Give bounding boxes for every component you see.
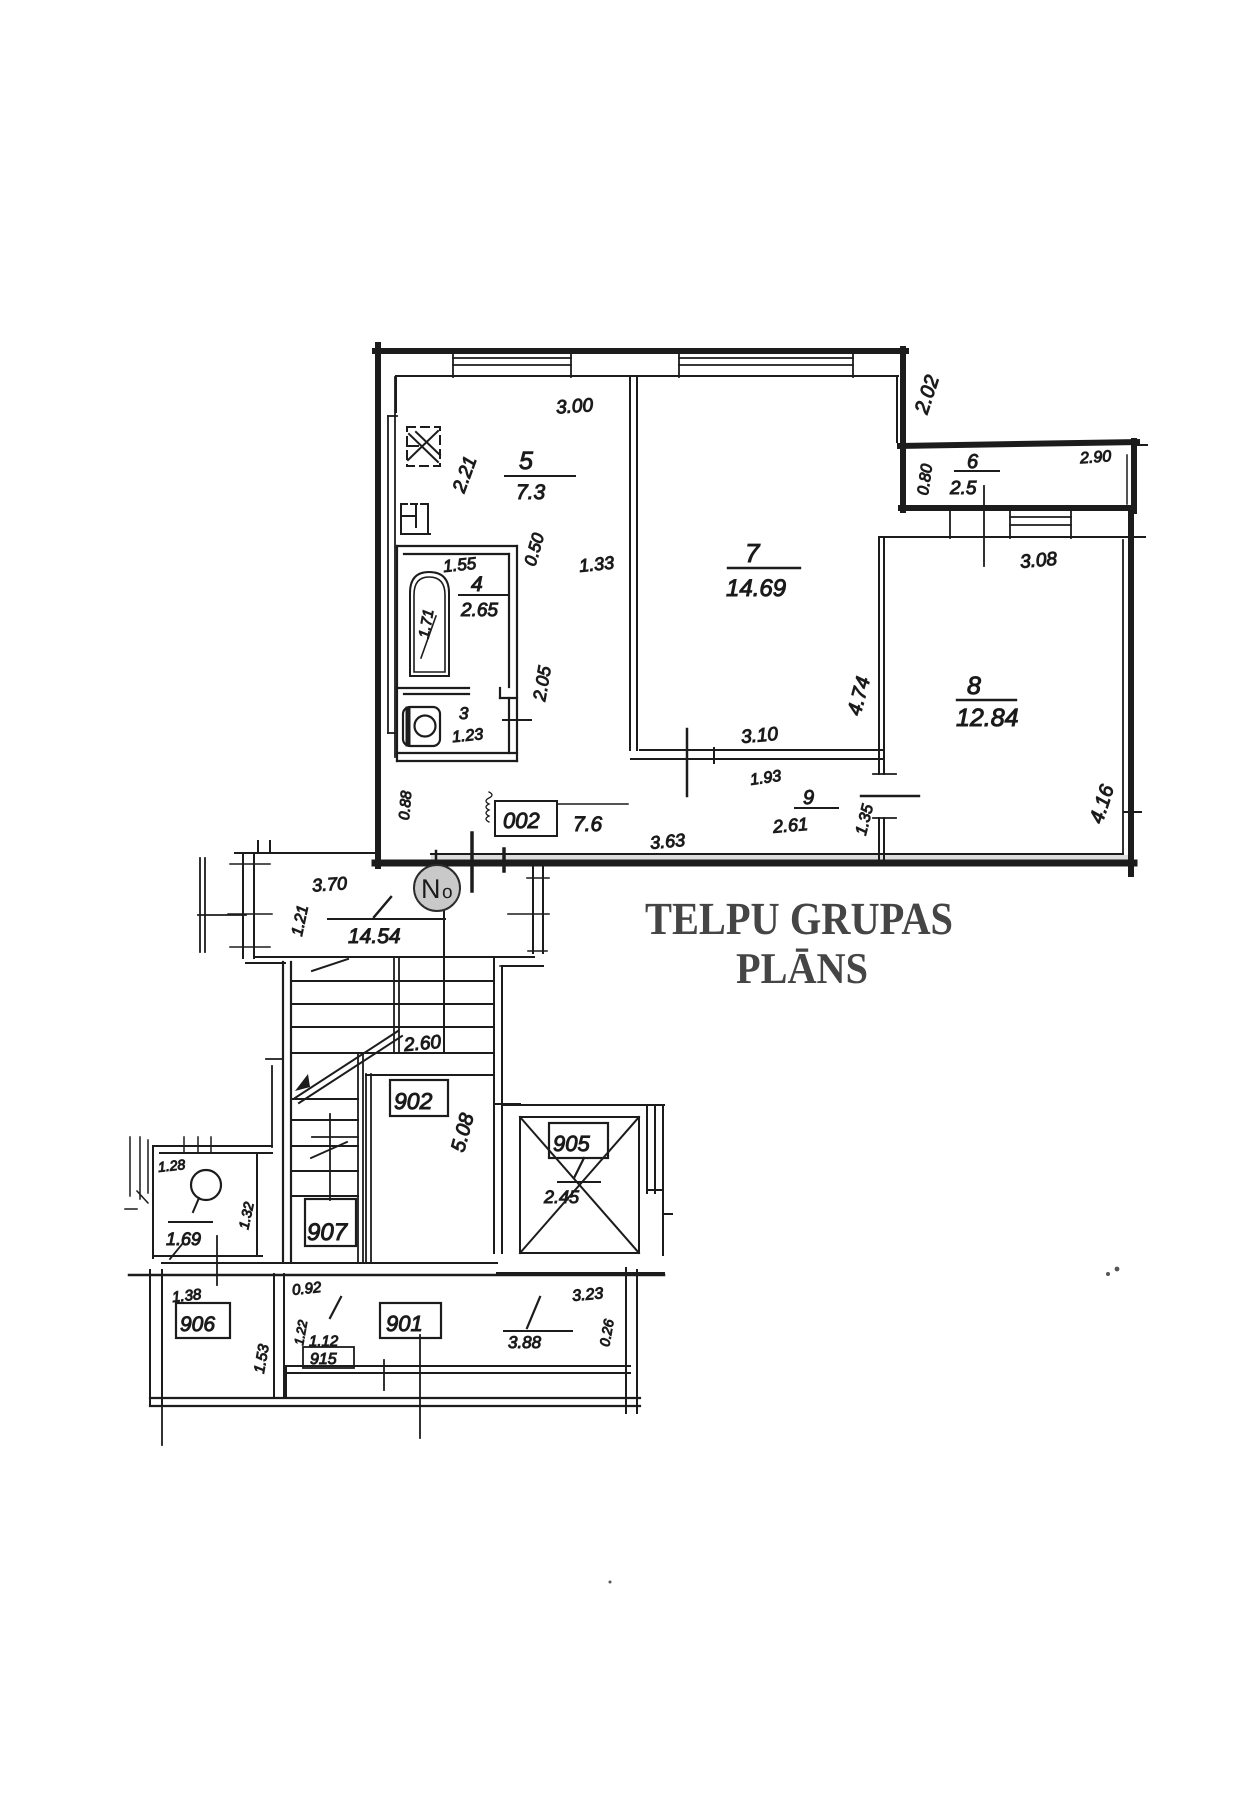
svg-text:2.45: 2.45 bbox=[543, 1187, 580, 1207]
svg-text:901: 901 bbox=[386, 1311, 423, 1336]
svg-text:N: N bbox=[421, 874, 441, 904]
svg-text:1.33: 1.33 bbox=[578, 552, 615, 576]
svg-text:12.84: 12.84 bbox=[956, 704, 1019, 732]
svg-text:7.3: 7.3 bbox=[516, 481, 546, 504]
svg-text:o: o bbox=[442, 882, 453, 903]
svg-text:7.6: 7.6 bbox=[573, 813, 603, 836]
svg-text:8: 8 bbox=[967, 672, 981, 700]
svg-text:2.65: 2.65 bbox=[460, 600, 498, 621]
svg-text:3.70: 3.70 bbox=[311, 873, 347, 895]
svg-text:3.88: 3.88 bbox=[508, 1333, 542, 1352]
svg-text:PLĀNS: PLĀNS bbox=[736, 944, 868, 993]
svg-text:6: 6 bbox=[967, 451, 979, 473]
svg-text:14.54: 14.54 bbox=[348, 925, 401, 948]
svg-text:906: 906 bbox=[180, 1313, 215, 1336]
svg-text:0.88: 0.88 bbox=[396, 790, 416, 821]
svg-text:2.61: 2.61 bbox=[771, 814, 809, 837]
svg-text:2.5: 2.5 bbox=[949, 478, 977, 499]
svg-text:907: 907 bbox=[307, 1219, 349, 1246]
svg-text:1.23: 1.23 bbox=[451, 726, 484, 746]
svg-text:4: 4 bbox=[471, 573, 483, 596]
svg-text:3.23: 3.23 bbox=[571, 1285, 604, 1305]
svg-text:14.69: 14.69 bbox=[726, 575, 786, 602]
svg-text:2.90: 2.90 bbox=[1078, 448, 1111, 467]
svg-text:3.63: 3.63 bbox=[649, 830, 686, 853]
svg-text:3.08: 3.08 bbox=[1019, 549, 1058, 573]
svg-text:2.60: 2.60 bbox=[402, 1032, 442, 1056]
svg-text:3.10: 3.10 bbox=[740, 724, 779, 748]
svg-text:TELPU GRUPAS: TELPU GRUPAS bbox=[645, 893, 953, 944]
svg-text:1.28: 1.28 bbox=[157, 1156, 186, 1175]
svg-text:002: 002 bbox=[503, 808, 540, 833]
svg-text:5: 5 bbox=[519, 447, 533, 475]
svg-text:9: 9 bbox=[803, 787, 814, 809]
svg-text:3.00: 3.00 bbox=[555, 395, 594, 419]
svg-text:1.69: 1.69 bbox=[166, 1229, 201, 1249]
svg-text:3: 3 bbox=[459, 704, 469, 723]
svg-text:0.92: 0.92 bbox=[291, 1279, 322, 1299]
svg-text:902: 902 bbox=[394, 1088, 433, 1114]
svg-text:7: 7 bbox=[745, 538, 761, 568]
svg-text:905: 905 bbox=[553, 1131, 590, 1156]
